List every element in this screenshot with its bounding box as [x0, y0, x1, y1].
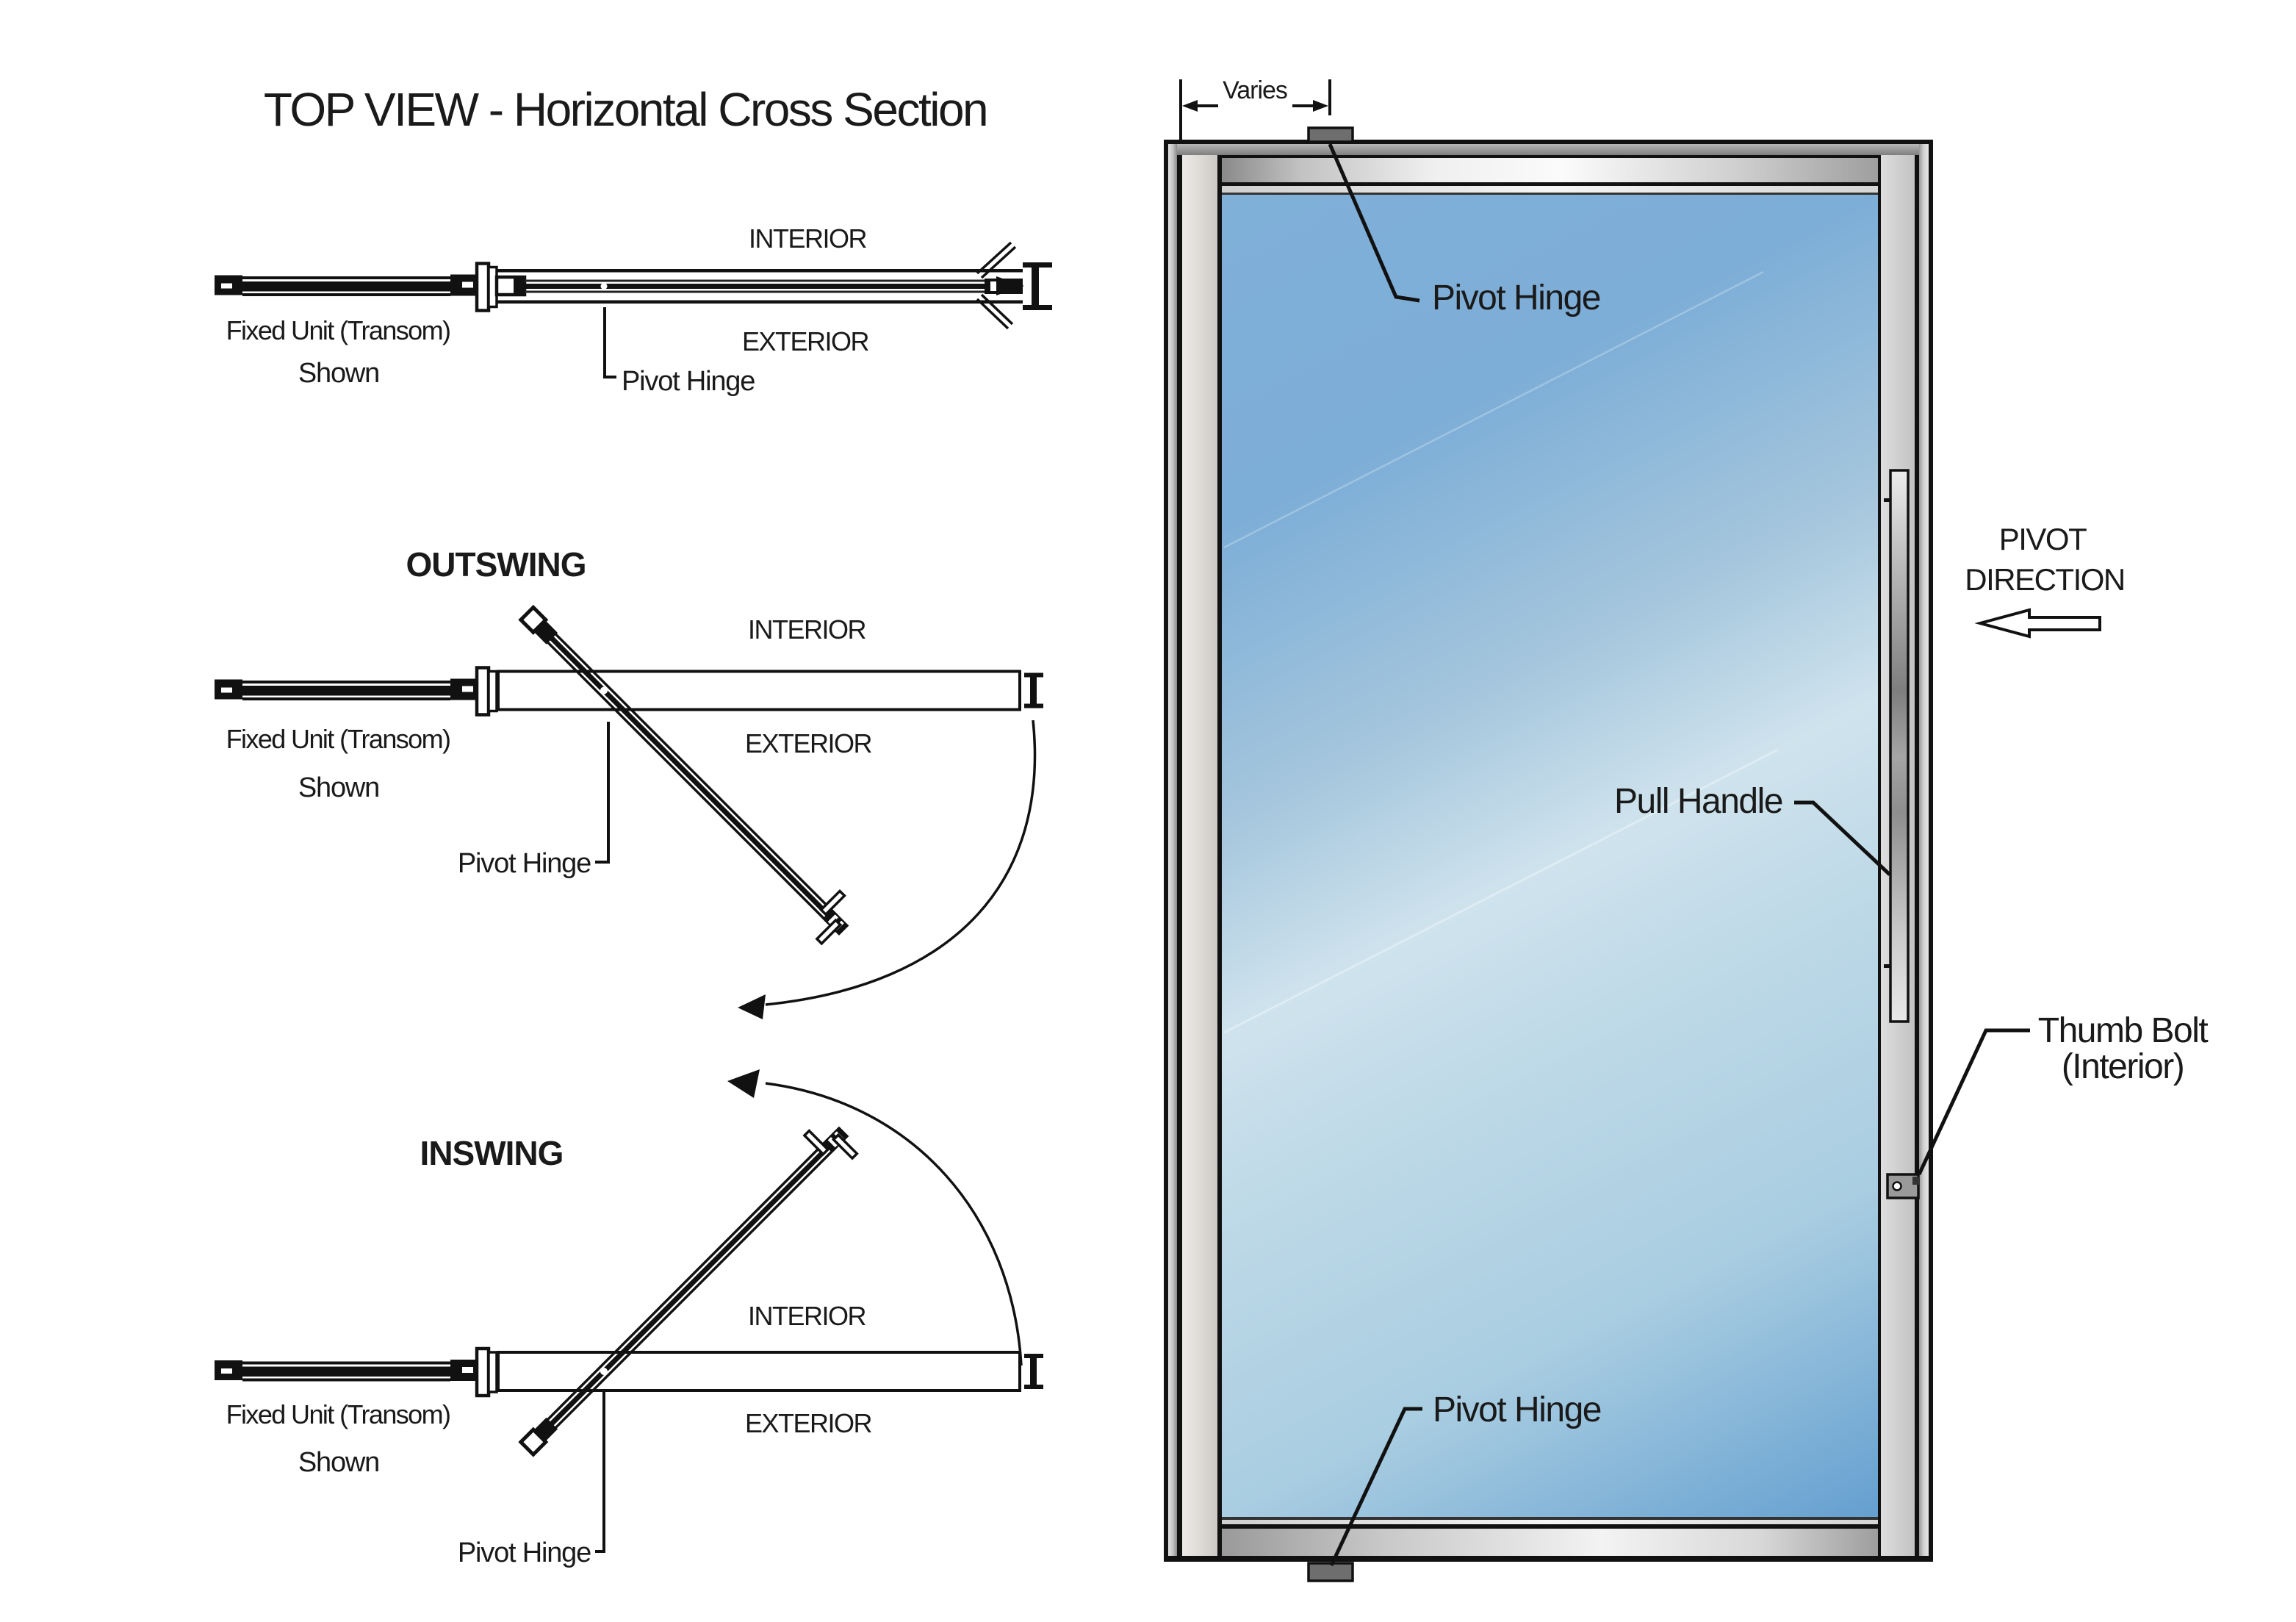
svg-text:INSWING: INSWING	[420, 1134, 564, 1172]
svg-text:Fixed Unit (Transom): Fixed Unit (Transom)	[226, 1399, 450, 1429]
svg-text:Pivot Hinge: Pivot Hinge	[1432, 279, 1600, 317]
svg-text:INTERIOR: INTERIOR	[748, 614, 866, 645]
svg-text:INTERIOR: INTERIOR	[748, 1301, 866, 1331]
svg-text:EXTERIOR: EXTERIOR	[742, 326, 869, 356]
svg-text:DIRECTION: DIRECTION	[1965, 562, 2125, 597]
svg-text:(Interior): (Interior)	[2062, 1047, 2184, 1086]
svg-text:Fixed Unit (Transom): Fixed Unit (Transom)	[226, 724, 450, 754]
svg-text:Varies: Varies	[1223, 76, 1287, 104]
svg-text:Shown: Shown	[298, 772, 379, 803]
svg-text:Shown: Shown	[298, 1447, 379, 1478]
svg-text:EXTERIOR: EXTERIOR	[745, 1408, 872, 1438]
svg-text:PIVOT: PIVOT	[1999, 522, 2087, 556]
svg-text:Pivot Hinge: Pivot Hinge	[458, 848, 591, 879]
svg-text:Thumb Bolt: Thumb Bolt	[2038, 1011, 2209, 1050]
svg-text:Pivot Hinge: Pivot Hinge	[622, 366, 755, 397]
svg-text:TOP VIEW - Horizontal Cross Se: TOP VIEW - Horizontal Cross Section	[264, 83, 987, 136]
svg-text:Shown: Shown	[298, 358, 379, 389]
svg-text:EXTERIOR: EXTERIOR	[745, 728, 872, 758]
svg-text:Fixed Unit (Transom): Fixed Unit (Transom)	[226, 315, 450, 345]
svg-text:Pivot Hinge: Pivot Hinge	[1433, 1390, 1601, 1429]
svg-text:INTERIOR: INTERIOR	[749, 223, 867, 254]
svg-text:OUTSWING: OUTSWING	[406, 545, 586, 584]
svg-text:Pivot Hinge: Pivot Hinge	[458, 1537, 591, 1568]
svg-text:Pull Handle: Pull Handle	[1614, 782, 1782, 821]
